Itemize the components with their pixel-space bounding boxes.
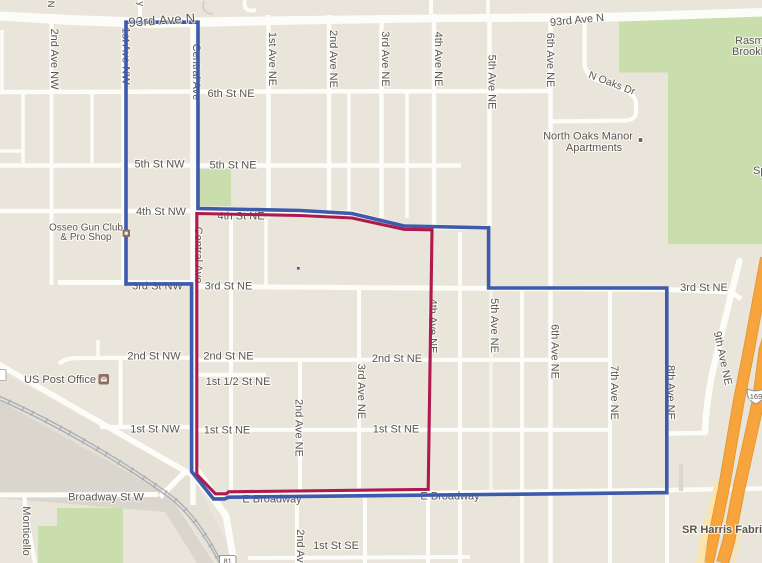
svg-text:6th St NE: 6th St NE (207, 88, 254, 100)
svg-text:1st St NE: 1st St NE (204, 425, 250, 437)
svg-text:2nd St NE: 2nd St NE (203, 351, 253, 363)
svg-text:7th Ave NE: 7th Ave NE (608, 365, 620, 420)
svg-text:5th St NW: 5th St NW (134, 159, 185, 171)
svg-text:US Post Office: US Post Office (24, 374, 96, 386)
svg-text:Apartments: Apartments (566, 142, 623, 154)
svg-text:Sp: Sp (753, 165, 762, 177)
svg-text:Brookl: Brookl (732, 46, 762, 58)
svg-text:1st 1/2 St NE: 1st 1/2 St NE (206, 376, 271, 388)
svg-text:4th Ave NE: 4th Ave NE (427, 299, 439, 354)
svg-text:169: 169 (750, 392, 762, 401)
svg-text:North Oaks Manor: North Oaks Manor (543, 131, 633, 143)
svg-text:5th Ave NE: 5th Ave NE (488, 298, 500, 353)
svg-text:2nd St NW: 2nd St NW (127, 351, 181, 363)
svg-text:2nd St NE: 2nd St NE (372, 353, 422, 365)
svg-text:4th St NW: 4th St NW (136, 206, 187, 218)
svg-text:4th Ave NE: 4th Ave NE (432, 32, 444, 87)
svg-text:3rd Ave NE: 3rd Ave NE (355, 364, 367, 419)
svg-text:Monticello: Monticello (20, 506, 32, 556)
svg-text:2nd Ave NE: 2nd Ave NE (327, 30, 339, 88)
svg-text:1st St SE: 1st St SE (313, 540, 359, 552)
svg-text:5th Ave NE: 5th Ave NE (486, 55, 498, 110)
svg-text:5th St NE: 5th St NE (209, 160, 256, 172)
svg-text:1st St NE: 1st St NE (373, 424, 419, 436)
svg-text:6th Ave NE: 6th Ave NE (544, 33, 556, 88)
svg-text:3rd Ave NE: 3rd Ave NE (379, 31, 391, 86)
svg-text:N: N (45, 1, 56, 8)
svg-text:2nd Ave: 2nd Ave (294, 529, 306, 563)
svg-text:Broadway St W: Broadway St W (68, 492, 144, 504)
svg-text:1st Ave NE: 1st Ave NE (266, 32, 278, 86)
svg-text:Central Ave: Central Ave (190, 44, 202, 101)
svg-text:4th St NE: 4th St NE (217, 211, 264, 223)
svg-text:2nd Ave NW: 2nd Ave NW (48, 29, 60, 91)
svg-text:81: 81 (224, 557, 232, 563)
svg-text:2nd Ave NE: 2nd Ave NE (293, 399, 305, 457)
svg-text:6th Ave NE: 6th Ave NE (549, 324, 561, 379)
svg-text:3rd St NE: 3rd St NE (205, 281, 253, 293)
svg-text:3rd St NE: 3rd St NE (680, 282, 728, 294)
svg-text:SR Harris Fabric: SR Harris Fabric (682, 524, 762, 536)
svg-text:1st St NW: 1st St NW (130, 424, 180, 436)
svg-text:& Pro Shop: & Pro Shop (60, 232, 112, 243)
